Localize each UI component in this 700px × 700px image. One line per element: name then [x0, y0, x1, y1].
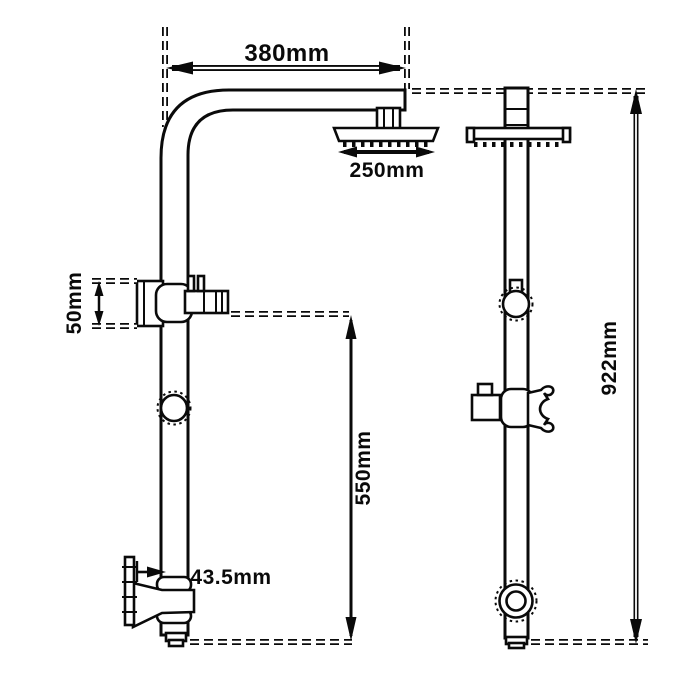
- dimension-50mm: 50mm: [63, 272, 137, 335]
- dimension-380mm: 380mm: [166, 40, 406, 75]
- holder-block: [472, 395, 500, 420]
- shower-rim-right: [563, 128, 570, 142]
- rail-end-cap: [509, 643, 524, 648]
- holder-clamp-prong: [188, 276, 194, 291]
- dim-label-43-5mm: 43.5mm: [190, 566, 271, 589]
- extension-lines: [165, 27, 649, 642]
- straight-rail: [505, 88, 528, 638]
- rail-adjuster-knob: [161, 395, 187, 421]
- shower-rail-dimension-drawing: 380mm 250mm 50mm 550mm 43.5mm: [0, 0, 700, 700]
- dim-label-250mm: 250mm: [350, 159, 425, 182]
- dim-label-50mm: 50mm: [63, 272, 86, 335]
- bottom-bracket-inner: [507, 592, 526, 611]
- head-connector: [377, 108, 400, 129]
- handset-holder-fork: [528, 386, 553, 431]
- right-view-front: [467, 88, 570, 648]
- dim-label-550mm: 550mm: [352, 431, 375, 506]
- dimension-922mm: 922mm: [598, 89, 642, 644]
- holder-clamp-tab: [478, 384, 492, 395]
- holder-clamp-prong: [198, 276, 204, 291]
- rail-end-cap: [169, 640, 183, 646]
- overhead-shower-front: [467, 128, 570, 139]
- dim-label-380mm: 380mm: [244, 40, 329, 67]
- dim-label-922mm: 922mm: [598, 321, 621, 396]
- overhead-shower-side: [334, 128, 438, 141]
- dimension-550mm: 550mm: [346, 315, 376, 641]
- shower-rim-left: [467, 128, 474, 142]
- dimension-250mm: 250mm: [338, 147, 435, 183]
- rail-adjuster-knob: [503, 291, 529, 317]
- technical-drawing-canvas: 380mm 250mm 50mm 550mm 43.5mm: [0, 0, 700, 700]
